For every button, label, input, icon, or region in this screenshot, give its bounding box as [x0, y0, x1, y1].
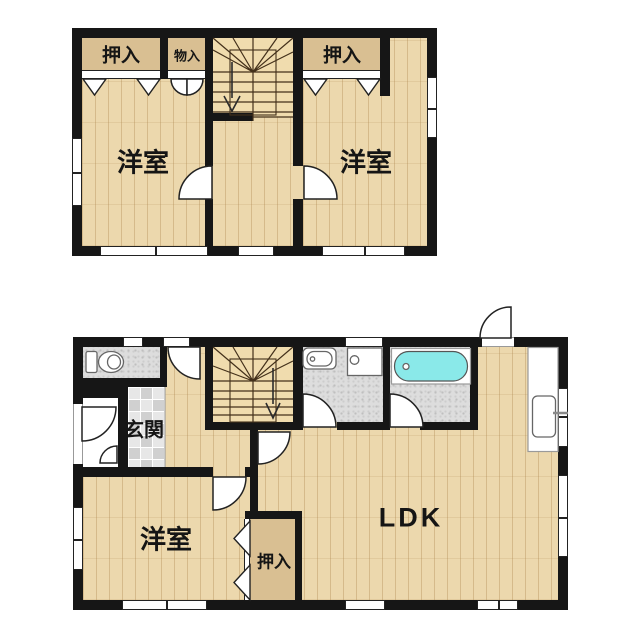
- floor2-storage-door-track: [168, 70, 205, 79]
- floor2-wall-hall-left-lower: [205, 199, 213, 246]
- floor1-washroom-floor: [303, 347, 383, 422]
- window-bedroom-bottom: [122, 600, 207, 610]
- wall-washroom-bottom: [337, 422, 383, 430]
- floor2-wall-hall-right-lower: [293, 199, 303, 246]
- floor2-bedroom-right-label: 洋室: [340, 143, 392, 180]
- floor1-wall-right: [558, 337, 568, 610]
- window-kitchen-right: [558, 388, 568, 447]
- window-above-toilet: [123, 337, 143, 347]
- floor2-window-bottom-left: [100, 246, 208, 256]
- floor2-stairs-area: [213, 38, 293, 117]
- floor2-bedroom-left-label: 洋室: [117, 143, 169, 180]
- floor2-window-bottom-hall: [238, 246, 274, 256]
- floor2-window-right: [427, 77, 437, 138]
- floor1-closet-door-track: [244, 519, 250, 600]
- wall-stairs-left: [205, 347, 213, 430]
- back-door: [480, 307, 511, 338]
- floor2-closet-right-door-track: [303, 70, 380, 79]
- wall-stairs-right: [293, 347, 303, 430]
- floor1-closet-label: 押入: [257, 548, 291, 573]
- floor2-wall-closet-right-stub: [380, 38, 390, 96]
- floor1-toilet-floor: [83, 347, 160, 378]
- floor2-wall-hall-left-upper: [205, 38, 213, 166]
- window-ldk-bottom-right: [477, 600, 518, 610]
- front-door-opening: [73, 404, 83, 464]
- floor2-closet-right-label: 押入: [323, 41, 361, 68]
- floor1-entrance-porch: [83, 398, 118, 467]
- wall-bathroom-right: [470, 347, 478, 430]
- wall-stairs-bottom: [205, 422, 303, 430]
- floor2-wall-closet-divider: [160, 38, 168, 79]
- back-door-opening: [482, 337, 514, 347]
- wall-hall-bottom: [83, 467, 213, 477]
- wall-closet-right: [295, 519, 302, 600]
- window-above-hall: [163, 337, 190, 347]
- wall-washroom-bathroom: [383, 347, 390, 430]
- floor1-bathroom-floor: [390, 347, 470, 422]
- window-above-washroom: [345, 337, 383, 347]
- entrance-step-line: [164, 387, 166, 467]
- floor-plan: 押入 物入 洋室 押入 洋室: [0, 0, 640, 639]
- entrance-label: 玄関: [124, 414, 164, 443]
- window-ldk-right: [558, 475, 568, 557]
- floor2-window-bottom-right: [322, 246, 405, 256]
- wall-hall-ldk: [250, 430, 258, 519]
- floor2-wall-right: [427, 28, 437, 256]
- window-ldk-bottom-left: [345, 600, 385, 610]
- wall-toilet-right: [160, 347, 167, 378]
- floor2-closet-left-door-track: [82, 70, 160, 79]
- ldk-label: LDK: [379, 503, 444, 534]
- floor1-bedroom-label: 洋室: [140, 520, 192, 557]
- floor2-wall-top: [72, 28, 437, 38]
- window-bedroom-left: [73, 507, 83, 570]
- floor2-storage-label: 物入: [174, 46, 200, 65]
- floor2-wall-hall-right-upper: [293, 38, 303, 166]
- floor1-stairs-area: [213, 347, 293, 422]
- floor2-window-left: [72, 138, 82, 206]
- floor2-closet-left-label: 押入: [102, 41, 140, 68]
- floor2-wall-stair-stub: [208, 113, 253, 121]
- wall-closet-top: [245, 511, 302, 519]
- wall-toilet-stub: [83, 387, 118, 398]
